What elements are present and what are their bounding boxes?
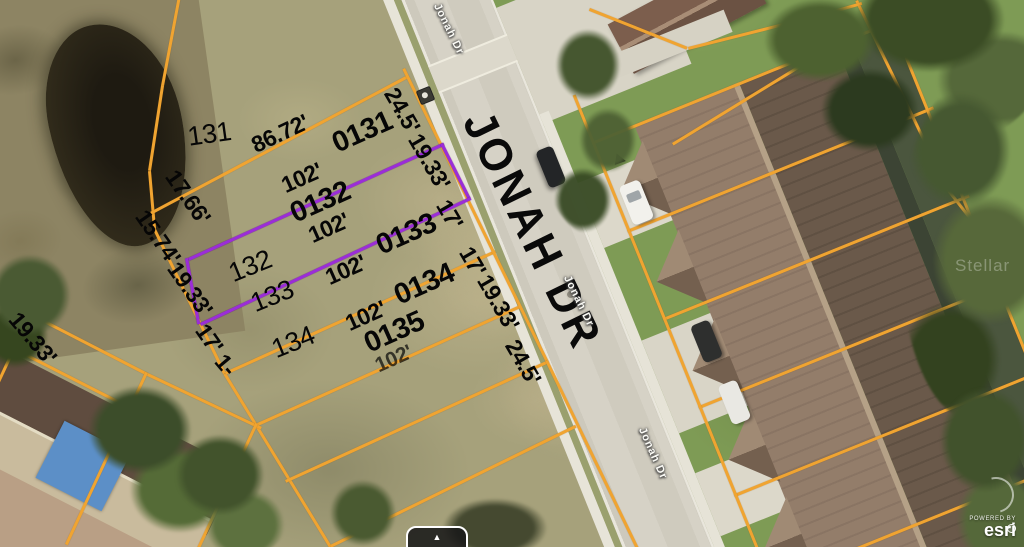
esri-attribution[interactable]: POWERED BY esri — [969, 516, 1016, 541]
powered-by-label: POWERED BY — [969, 516, 1016, 522]
map-label: 131 — [186, 118, 233, 151]
globe-icon — [1007, 524, 1016, 533]
expand-panel-button[interactable]: ▲ — [406, 526, 468, 547]
watermark: Stellar — [955, 256, 1010, 276]
chevron-up-icon: ▲ — [433, 532, 442, 542]
map-canvas[interactable]: 13186.72'0131102'0132102'0133132133102'0… — [0, 0, 1024, 547]
